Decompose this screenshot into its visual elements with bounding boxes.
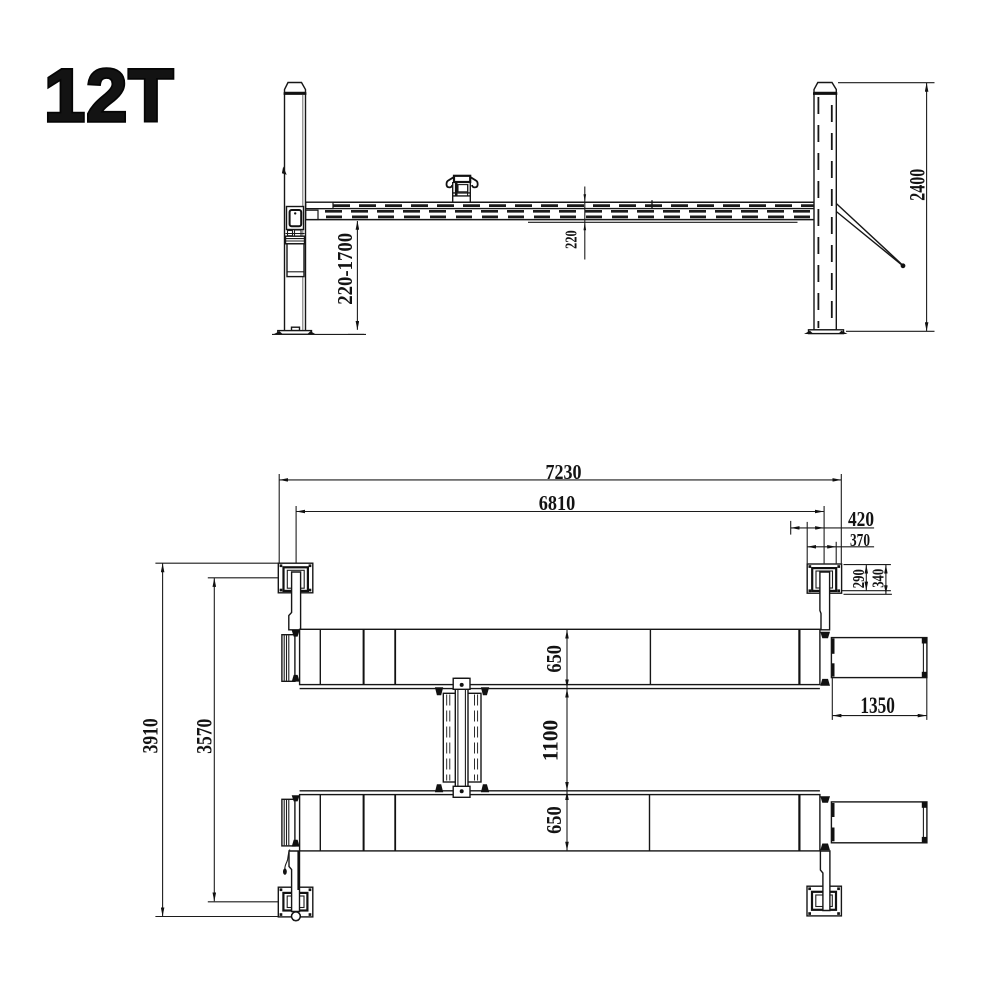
svg-text:220: 220: [562, 230, 581, 249]
svg-text:650: 650: [542, 806, 566, 834]
svg-text:420: 420: [848, 507, 874, 531]
svg-text:12T: 12T: [44, 54, 175, 137]
svg-text:650: 650: [542, 645, 566, 673]
svg-text:220-1700: 220-1700: [333, 233, 357, 305]
svg-text:370: 370: [850, 530, 870, 550]
svg-text:1350: 1350: [860, 693, 895, 718]
svg-text:340: 340: [869, 569, 888, 588]
svg-text:1100: 1100: [538, 720, 563, 761]
svg-text:3570: 3570: [191, 719, 216, 754]
svg-text:2400: 2400: [904, 169, 929, 201]
svg-text:7230: 7230: [546, 460, 582, 484]
svg-text:6810: 6810: [539, 491, 576, 515]
svg-text:290: 290: [849, 569, 868, 588]
svg-text:3910: 3910: [138, 718, 163, 753]
